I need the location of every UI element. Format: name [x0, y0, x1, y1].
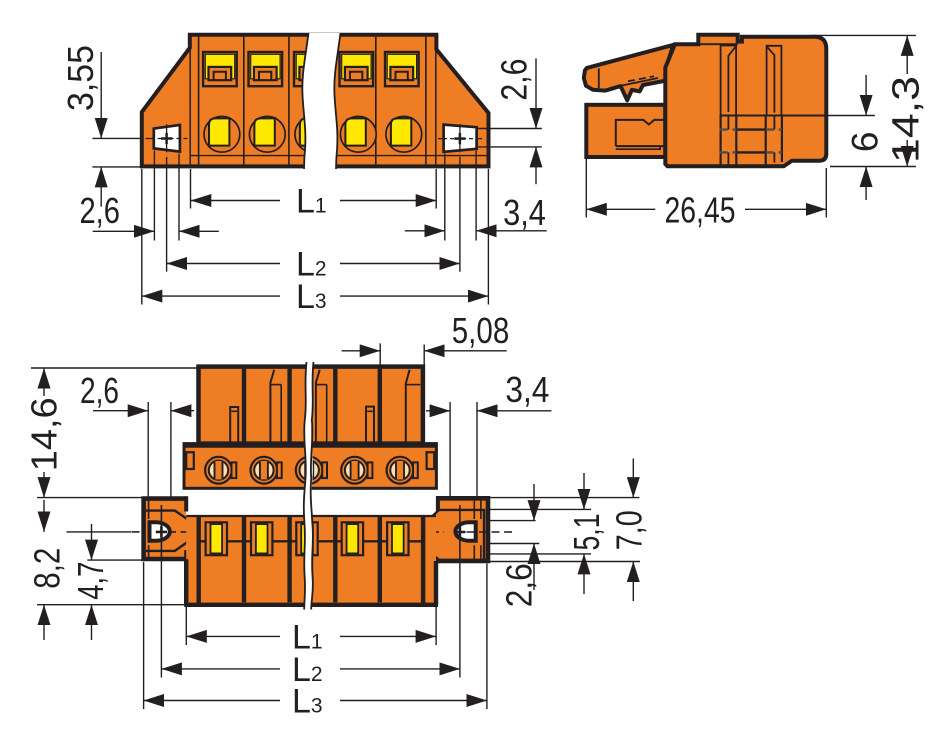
svg-text:14,3: 14,3 [885, 76, 927, 163]
svg-text:14,6: 14,6 [24, 397, 65, 471]
svg-text:3,55: 3,55 [60, 45, 101, 111]
svg-text:3,4: 3,4 [505, 369, 549, 410]
svg-text:7,0: 7,0 [609, 510, 650, 550]
svg-text:L3: L3 [296, 278, 327, 316]
svg-text:2,6: 2,6 [493, 59, 534, 101]
svg-text:8,2: 8,2 [27, 548, 68, 589]
svg-text:L1: L1 [296, 183, 327, 221]
svg-text:5,08: 5,08 [452, 310, 510, 351]
svg-text:L3: L3 [292, 683, 323, 721]
svg-text:2,6: 2,6 [499, 563, 540, 607]
svg-text:5,1: 5,1 [566, 514, 607, 551]
svg-text:26,45: 26,45 [665, 189, 736, 230]
svg-text:2,6: 2,6 [79, 190, 120, 231]
svg-text:6: 6 [845, 132, 886, 153]
svg-text:4,7: 4,7 [70, 562, 111, 600]
svg-text:3,4: 3,4 [503, 192, 546, 233]
svg-text:2,6: 2,6 [80, 370, 119, 411]
